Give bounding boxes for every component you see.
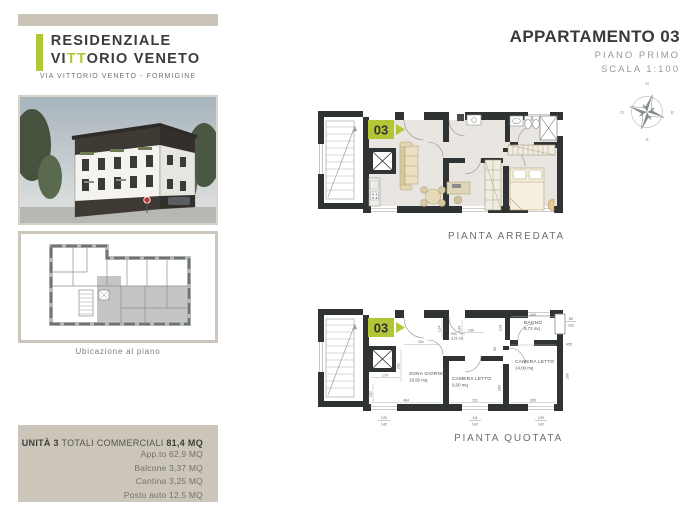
unit-summary-item: Posto auto 12,5 MQ (18, 489, 203, 503)
room-bagno-area: 5,73 mq (524, 326, 540, 331)
svg-text:142: 142 (381, 423, 387, 427)
compass-e: E (671, 110, 674, 115)
svg-text:142: 142 (472, 423, 478, 427)
room-labels: ZONA GIORNO 18,56 mq CAMERA LETTO 9,00 m… (409, 320, 554, 388)
room-cam14-area: 14,00 mq (515, 366, 534, 371)
floor-location-caption: Ubicazione al piano (18, 347, 218, 356)
kitchen (369, 178, 380, 206)
room-cam9-area: 9,00 mq (452, 383, 468, 388)
svg-text:134: 134 (458, 326, 462, 332)
svg-text:150: 150 (468, 328, 474, 332)
svg-text:142: 142 (538, 423, 544, 427)
svg-text:134: 134 (499, 325, 503, 331)
svg-text:281: 281 (418, 340, 424, 344)
svg-text:305: 305 (530, 399, 536, 403)
scale-subtitle: SCALA 1:100 (510, 64, 680, 75)
elevator (369, 148, 396, 174)
svg-text:455: 455 (566, 343, 572, 347)
svg-text:99: 99 (493, 347, 497, 351)
svg-text:120: 120 (538, 416, 544, 420)
plan-arredata: 03 (312, 98, 588, 233)
compass-icon: N O S E (617, 78, 677, 142)
compass-n: N (645, 81, 648, 86)
building-render-photo (18, 95, 218, 225)
svg-text:197: 197 (369, 391, 373, 397)
logo: RESIDENZIALE VITTORIO VENETO (18, 32, 218, 71)
logo-address: VIA VITTORIO VENETO - FORMIGINE (18, 73, 218, 80)
svg-text:170: 170 (382, 374, 388, 378)
compass-s: S (645, 137, 648, 142)
svg-text:261: 261 (397, 363, 401, 369)
logo-accent-letters: TT (67, 51, 87, 67)
unit-summary-item: Balcone 3,37 MQ (18, 462, 203, 476)
room-zona-name: ZONA GIORNO (409, 371, 445, 377)
shaft (555, 314, 565, 334)
svg-text:443: 443 (530, 313, 536, 317)
plan-quotata-label: PIANTA QUOTATA (363, 433, 563, 444)
elevator (369, 346, 396, 372)
svg-text:124: 124 (438, 326, 442, 332)
stairwell (326, 319, 357, 397)
unit-badge-number: 03 (374, 321, 388, 336)
logo-line2: VITTORIO VENETO (51, 50, 201, 68)
plan-quotata: 03 ZONA GIORNO 18,56 mq CAMERA LETTO 9,0… (312, 296, 588, 431)
svg-text:162: 162 (568, 324, 574, 328)
room-cam14-name: CAMERA LETTO (515, 359, 554, 365)
unit-badge: 03 (368, 318, 405, 337)
logo-line1: RESIDENZIALE (51, 32, 201, 50)
svg-text:80: 80 (569, 317, 573, 321)
compass-rose: N O S E (617, 78, 677, 142)
svg-text:260: 260 (566, 373, 570, 379)
logo-accent-bar (36, 34, 43, 71)
unit-summary-item: App.to 62,9 MQ (18, 448, 203, 462)
page-header: APPARTAMENTO 03 PIANO PRIMO SCALA 1:100 (510, 27, 680, 75)
stairwell (326, 121, 357, 199)
svg-text:311: 311 (472, 399, 478, 403)
shaft (540, 116, 557, 140)
top-taupe-bar (18, 14, 218, 26)
svg-text:464: 464 (403, 399, 409, 403)
svg-text:120: 120 (381, 416, 387, 420)
logo-text: RESIDENZIALE VITTORIO VENETO (51, 32, 201, 71)
room-cam9-name: CAMERA LETTO (452, 376, 491, 382)
floor-subtitle: PIANO PRIMO (510, 50, 680, 61)
floor-location-plan (21, 234, 215, 340)
svg-text:289: 289 (497, 385, 501, 391)
room-zona-area: 18,56 mq (409, 378, 428, 383)
svg-text:111: 111 (472, 416, 478, 420)
unit-summary-box: UNITÀ 3 TOTALI COMMERCIALI 81,4 MQ App.t… (18, 425, 218, 502)
room-dis-area: 3,21 mq (451, 337, 463, 341)
floor-location-frame (18, 231, 218, 343)
unit-badge-number: 03 (374, 123, 388, 138)
brochure-page: RESIDENZIALE VITTORIO VENETO VIA VITTORI… (0, 0, 692, 518)
plan-arredata-label: PIANTA ARREDATA (365, 231, 565, 242)
building-illustration (20, 97, 216, 223)
page-title: APPARTAMENTO 03 (510, 27, 680, 47)
unit-summary-item: Cantina 3,25 MQ (18, 475, 203, 489)
unit-summary-title: UNITÀ 3 TOTALI COMMERCIALI 81,4 MQ (18, 438, 203, 448)
compass-o: O (620, 110, 624, 115)
